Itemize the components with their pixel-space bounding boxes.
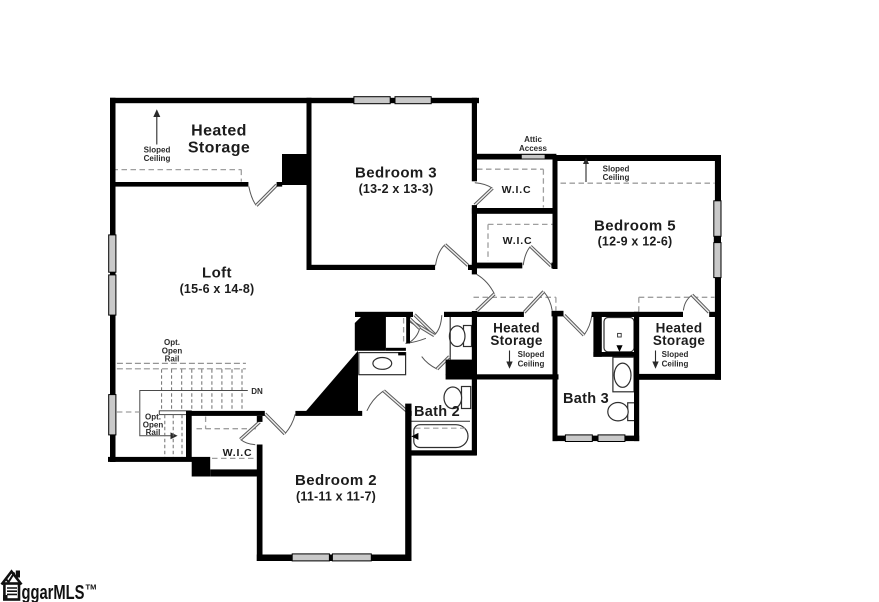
svg-text:Sloped: Sloped bbox=[518, 350, 545, 359]
svg-text:Rail: Rail bbox=[146, 428, 161, 437]
svg-text:W.I.C: W.I.C bbox=[503, 235, 533, 247]
svg-text:Bath 2: Bath 2 bbox=[414, 404, 460, 420]
svg-text:(12-9 x 12-6): (12-9 x 12-6) bbox=[598, 235, 673, 249]
svg-text:Ceiling: Ceiling bbox=[603, 173, 630, 182]
svg-text:Ceiling: Ceiling bbox=[662, 359, 689, 368]
svg-text:DN: DN bbox=[251, 387, 263, 396]
svg-text:Loft: Loft bbox=[202, 265, 232, 282]
svg-text:(11-11 x 11-7): (11-11 x 11-7) bbox=[296, 490, 376, 504]
svg-text:Storage: Storage bbox=[653, 333, 706, 348]
svg-text:Sloped: Sloped bbox=[144, 145, 171, 154]
svg-text:Access: Access bbox=[519, 144, 548, 153]
svg-text:(15-6 x 14-8): (15-6 x 14-8) bbox=[180, 282, 255, 296]
svg-text:Heated: Heated bbox=[191, 123, 247, 140]
svg-text:Ceiling: Ceiling bbox=[144, 154, 171, 163]
svg-text:Attic: Attic bbox=[524, 135, 542, 144]
svg-text:Bath 3: Bath 3 bbox=[563, 391, 609, 407]
svg-text:Bedroom 3: Bedroom 3 bbox=[355, 165, 437, 182]
svg-text:Bedroom 5: Bedroom 5 bbox=[594, 218, 676, 235]
svg-text:Sloped: Sloped bbox=[662, 350, 689, 359]
svg-text:Storage: Storage bbox=[490, 333, 543, 348]
svg-text:Sloped: Sloped bbox=[603, 164, 630, 173]
svg-text:W.I.C: W.I.C bbox=[502, 184, 532, 196]
svg-text:Ceiling: Ceiling bbox=[518, 359, 545, 368]
svg-text:Rail: Rail bbox=[165, 355, 180, 364]
svg-text:W.I.C: W.I.C bbox=[223, 447, 253, 459]
svg-text:ggarMLS: ggarMLS bbox=[22, 581, 85, 602]
svg-text:(13-2 x 13-3): (13-2 x 13-3) bbox=[359, 182, 434, 196]
svg-text:TM: TM bbox=[86, 583, 97, 592]
svg-text:Storage: Storage bbox=[188, 140, 250, 157]
svg-text:Bedroom 2: Bedroom 2 bbox=[295, 472, 377, 489]
